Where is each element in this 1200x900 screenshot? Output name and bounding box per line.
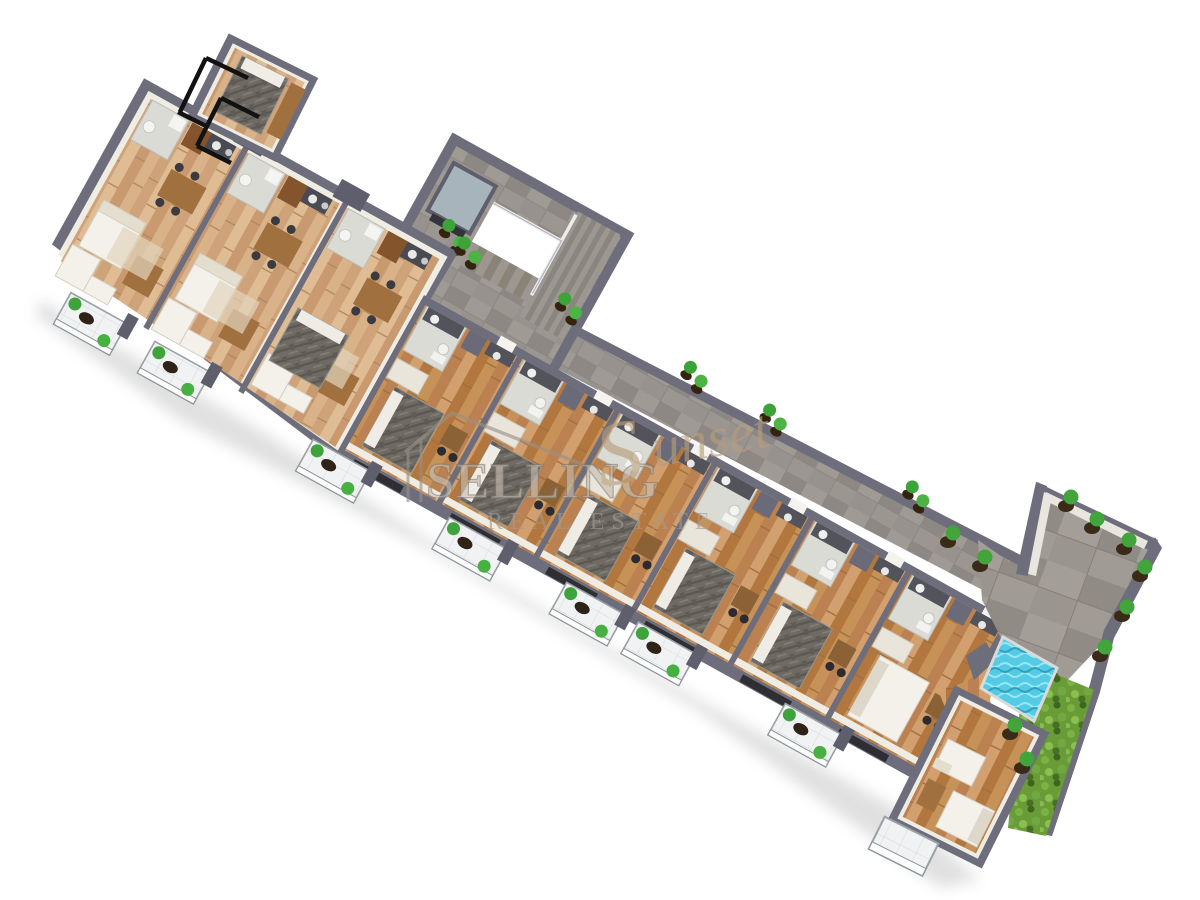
svg-text:REAL ESTATE: REAL ESTATE	[487, 509, 717, 535]
